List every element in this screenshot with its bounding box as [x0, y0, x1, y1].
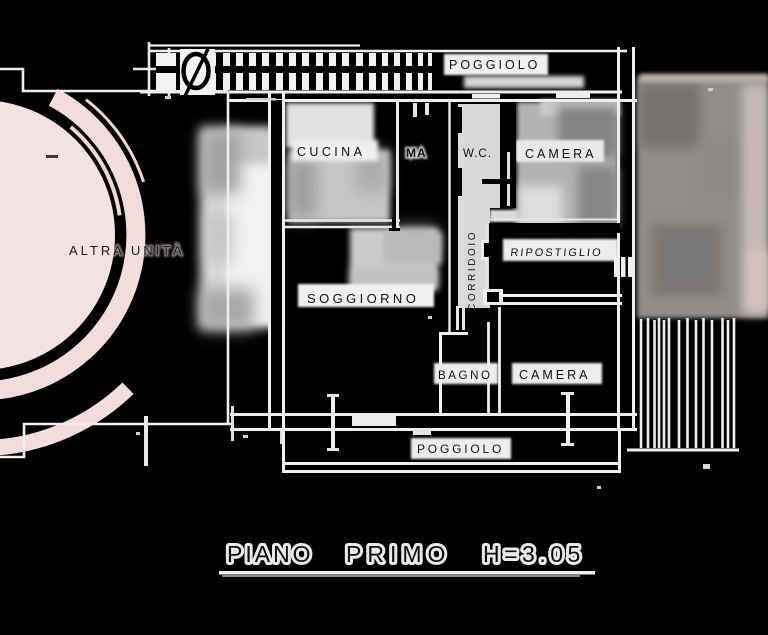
svg-text:BAGNO: BAGNO [438, 370, 493, 382]
svg-text:PRIMO: PRIMO [346, 541, 451, 567]
svg-text:H=3.05: H=3.05 [483, 541, 585, 567]
svg-text:W.C.: W.C. [463, 148, 492, 160]
svg-text:CAMERA: CAMERA [525, 147, 596, 161]
svg-text:CUCINA: CUCINA [297, 145, 365, 159]
svg-text:SOGGIORNO: SOGGIORNO [307, 291, 419, 306]
svg-text:CAMERA: CAMERA [519, 368, 590, 382]
svg-text:POGGIOLO: POGGIOLO [417, 442, 504, 456]
svg-text:ALTRA UNITÀ: ALTRA UNITÀ [69, 243, 185, 258]
svg-text:POGGIOLO: POGGIOLO [449, 58, 540, 72]
svg-text:CORRIDOIO: CORRIDOIO [467, 230, 478, 311]
svg-text:MA: MA [406, 146, 427, 160]
svg-text:RIPOSTIGLIO: RIPOSTIGLIO [510, 247, 603, 259]
svg-text:PIANO: PIANO [227, 541, 314, 567]
